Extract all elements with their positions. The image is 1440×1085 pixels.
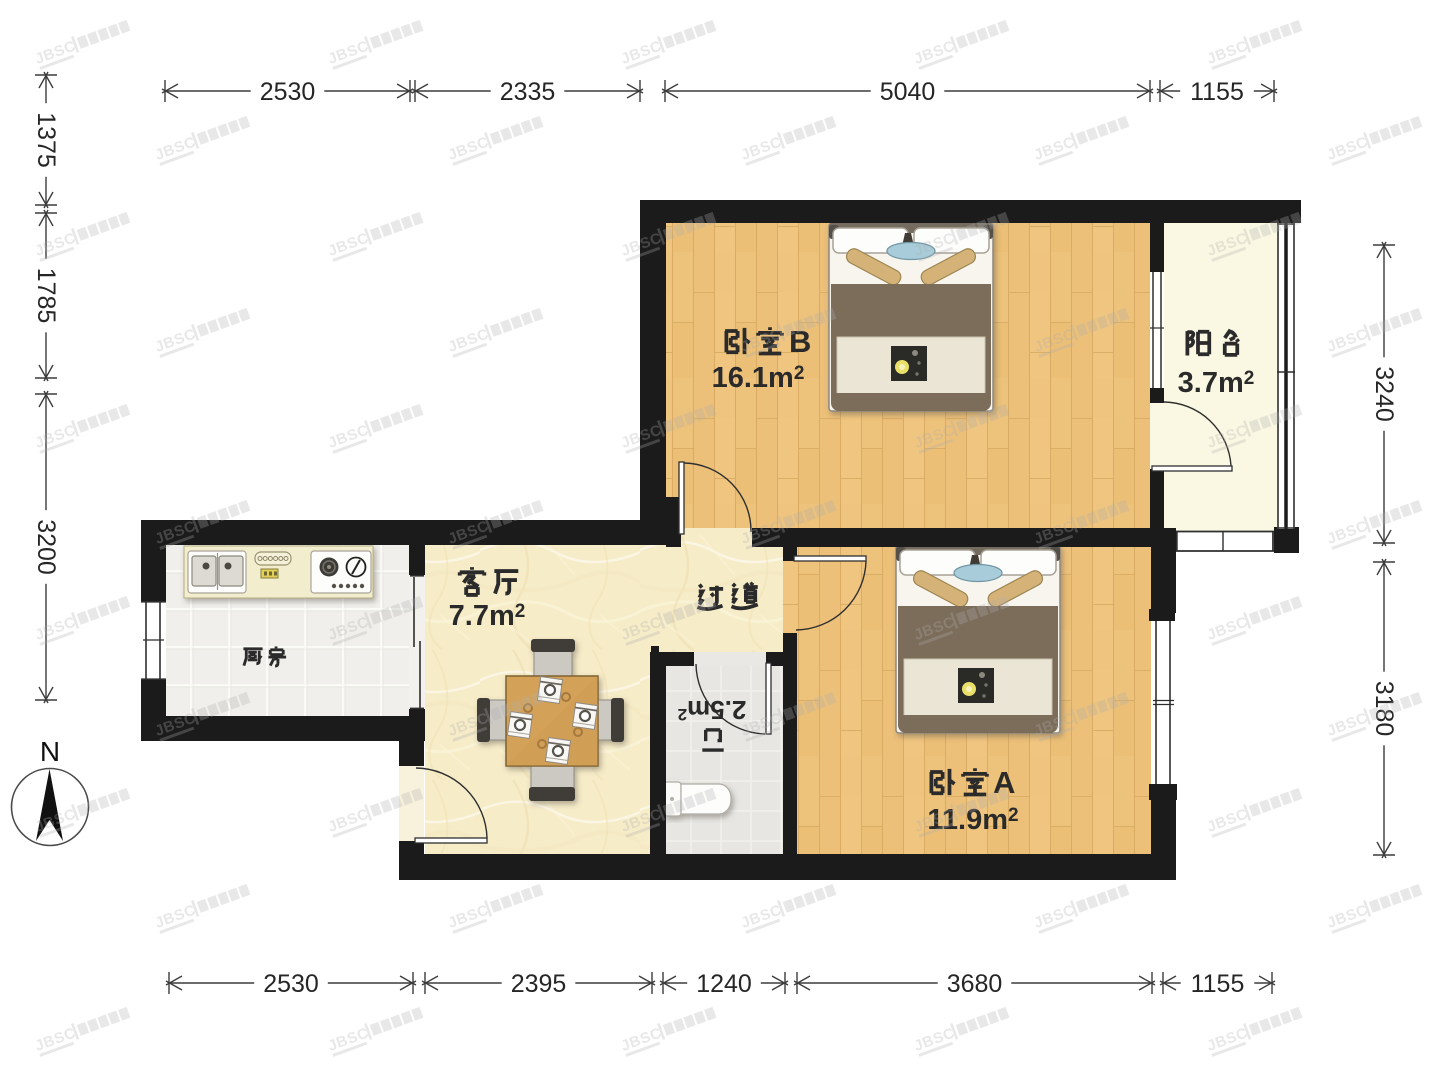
svg-text:1785: 1785 <box>32 268 60 324</box>
svg-text:3.7m2: 3.7m2 <box>1178 367 1255 399</box>
svg-text:3240: 3240 <box>1370 366 1398 422</box>
svg-text:2395: 2395 <box>511 970 567 998</box>
svg-text:2530: 2530 <box>263 970 319 998</box>
svg-text:5040: 5040 <box>880 78 936 106</box>
svg-text:1240: 1240 <box>696 970 752 998</box>
svg-text:3680: 3680 <box>947 970 1003 998</box>
svg-text:1155: 1155 <box>1191 970 1245 998</box>
svg-text:7.7m2: 7.7m2 <box>449 600 526 632</box>
svg-text:1375: 1375 <box>32 112 60 168</box>
svg-text:2335: 2335 <box>500 78 556 106</box>
svg-text:2.5m2: 2.5m2 <box>678 695 747 725</box>
svg-text:1155: 1155 <box>1190 78 1244 106</box>
svg-text:16.1m2: 16.1m2 <box>712 362 805 394</box>
svg-text:N: N <box>40 736 60 767</box>
svg-text:2530: 2530 <box>260 78 316 106</box>
svg-text:3200: 3200 <box>32 519 60 575</box>
